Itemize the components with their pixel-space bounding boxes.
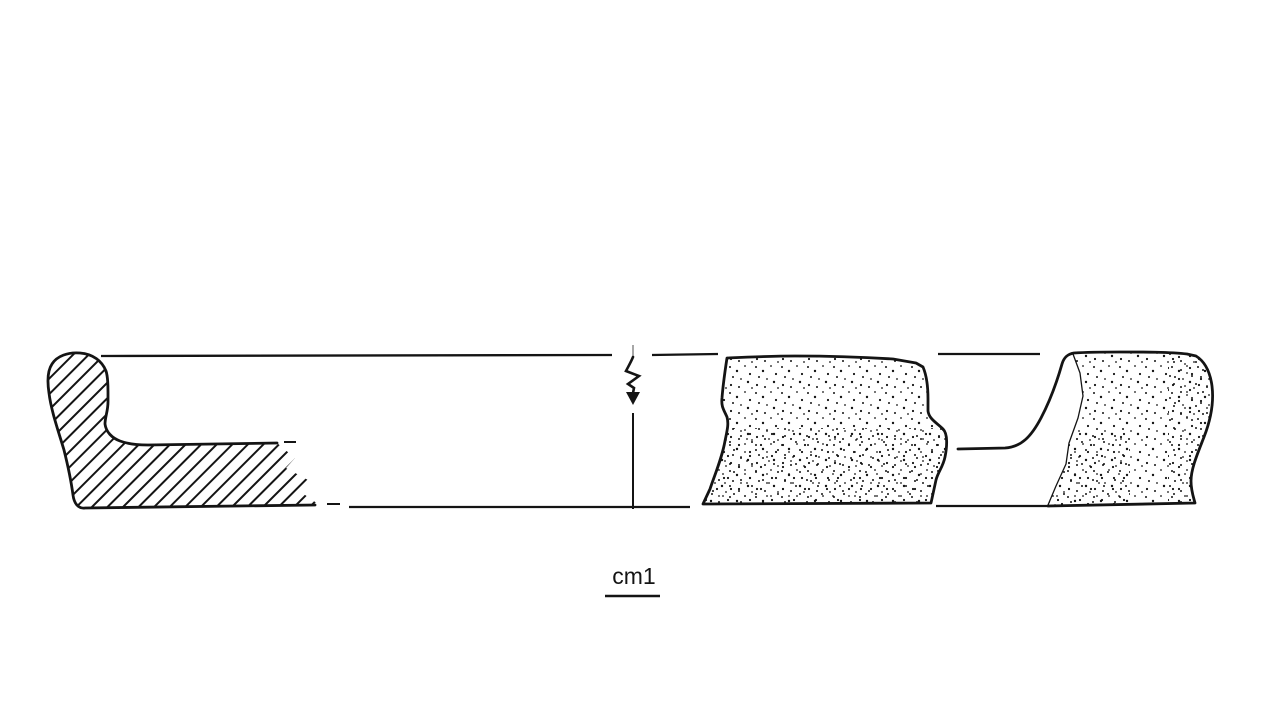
rim-profile-hatch-fill xyxy=(48,353,318,508)
rim-stance-line-left xyxy=(101,355,612,356)
scale-bar: cm1 xyxy=(605,563,660,596)
body-sherd-shading xyxy=(698,428,948,508)
pottery-drawing-canvas: cm1 xyxy=(0,0,1280,709)
rim-sherd-shading-lower xyxy=(1040,432,1130,508)
center-axis-break-arrow xyxy=(626,345,640,509)
rim-profile-section xyxy=(48,353,340,508)
break-arrowhead xyxy=(626,392,640,405)
pottery-drawing-svg: cm1 xyxy=(0,0,1280,709)
break-zigzag xyxy=(626,357,639,393)
rim-stance-line-mid xyxy=(652,354,718,355)
rim-sherd-profile-and-exterior xyxy=(958,352,1218,508)
scale-label: cm1 xyxy=(612,563,655,589)
body-sherd-exterior xyxy=(698,356,948,508)
